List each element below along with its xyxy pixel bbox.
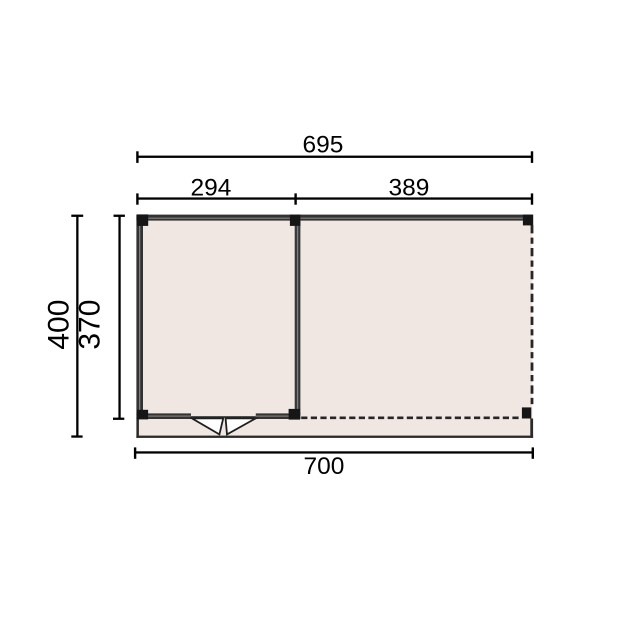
- svg-text:370: 370: [73, 300, 106, 350]
- svg-text:400: 400: [43, 300, 76, 350]
- svg-text:294: 294: [191, 175, 232, 202]
- svg-text:700: 700: [303, 453, 344, 480]
- svg-text:695: 695: [303, 131, 344, 158]
- svg-text:389: 389: [389, 174, 430, 201]
